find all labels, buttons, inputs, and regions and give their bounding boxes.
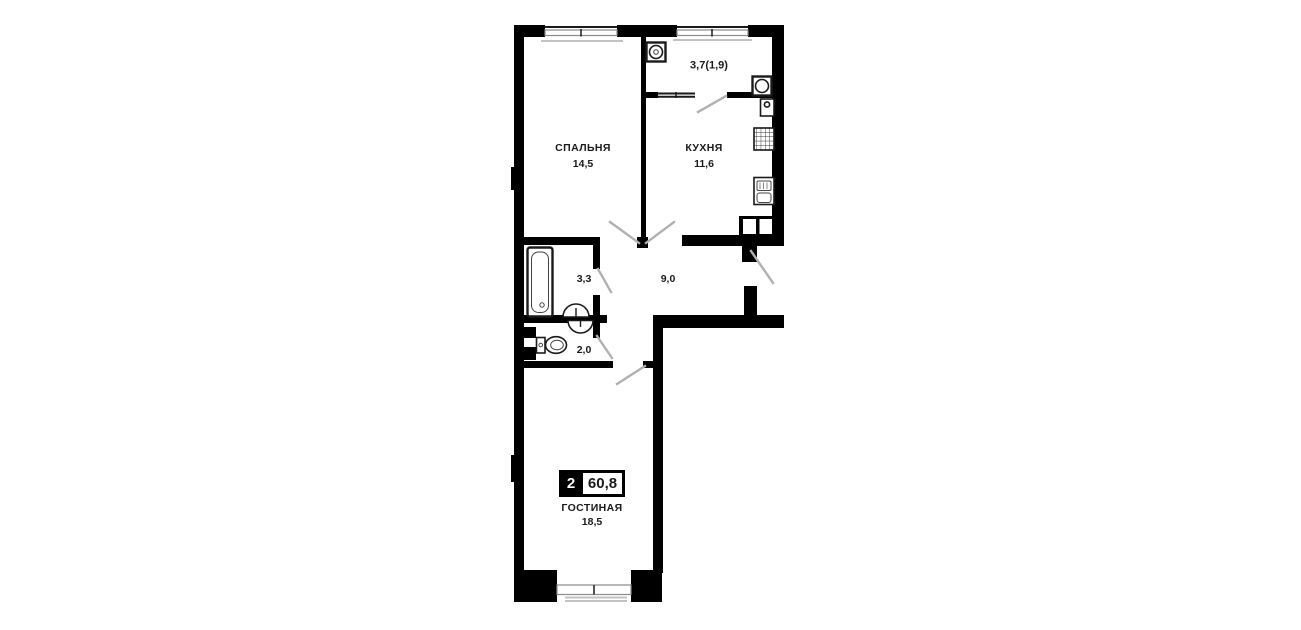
apartment-badge: 2 60,8 bbox=[559, 470, 625, 497]
wall-segment bbox=[655, 315, 784, 328]
window-balcony-kitchen bbox=[658, 92, 695, 98]
wall-segment bbox=[744, 286, 757, 317]
water-heater bbox=[761, 99, 775, 116]
door-swing bbox=[646, 222, 674, 243]
bathtub bbox=[528, 248, 553, 317]
toilet bbox=[537, 337, 567, 354]
bedroom-name-label: СПАЛЬНЯ bbox=[555, 143, 611, 154]
wall-segment bbox=[617, 25, 677, 37]
bathroom-area-label: 3,3 bbox=[577, 274, 592, 285]
kitchen-sink bbox=[754, 178, 774, 205]
wall-segment bbox=[514, 237, 600, 245]
bathroom-sink bbox=[563, 304, 589, 317]
door-swing bbox=[617, 366, 645, 384]
living-room-area-label: 18,5 bbox=[582, 517, 602, 528]
kitchen-area-label: 11,6 bbox=[694, 159, 714, 170]
window-living-room bbox=[557, 585, 631, 601]
balcony-area-label: 3,7(1,9) bbox=[690, 61, 728, 72]
wall-segment bbox=[593, 245, 600, 269]
hallway-area-label: 9,0 bbox=[661, 274, 676, 285]
door-swing bbox=[610, 222, 639, 243]
wall-segment bbox=[653, 315, 663, 573]
window-bedroom bbox=[541, 27, 623, 41]
balcony-appliance-top bbox=[647, 43, 666, 62]
wall-segment bbox=[514, 570, 557, 602]
wall-segment bbox=[514, 25, 524, 602]
balcony-appliance-bottom bbox=[753, 77, 772, 96]
wall-segment bbox=[524, 347, 536, 360]
bedroom-area-label: 14,5 bbox=[573, 159, 593, 170]
window-balcony bbox=[673, 27, 752, 40]
door-swing bbox=[597, 336, 612, 358]
badge-total-area: 60,8 bbox=[583, 473, 622, 494]
wall-segment bbox=[631, 570, 662, 602]
badge-rooms-count: 2 bbox=[559, 470, 583, 497]
floor-plan[interactable]: 3,7(1,9) СПАЛЬНЯ 14,5 КУХНЯ 11,6 3,3 9,0… bbox=[0, 0, 1301, 630]
wall-segment bbox=[524, 327, 536, 338]
wc-sink bbox=[568, 321, 593, 334]
door-swing bbox=[598, 269, 611, 292]
door-swing bbox=[751, 251, 773, 283]
stove bbox=[754, 128, 774, 150]
living-room-name-label: ГОСТИНАЯ bbox=[561, 503, 622, 514]
wc-area-label: 2,0 bbox=[577, 345, 592, 356]
wall-segment bbox=[514, 361, 613, 368]
wall-segment bbox=[514, 25, 545, 37]
door-swing bbox=[698, 96, 726, 112]
wall-segment bbox=[641, 37, 646, 240]
kitchen-name-label: КУХНЯ bbox=[685, 143, 722, 154]
floor-plan-drawing bbox=[0, 0, 1301, 630]
wall-segment bbox=[742, 246, 757, 262]
